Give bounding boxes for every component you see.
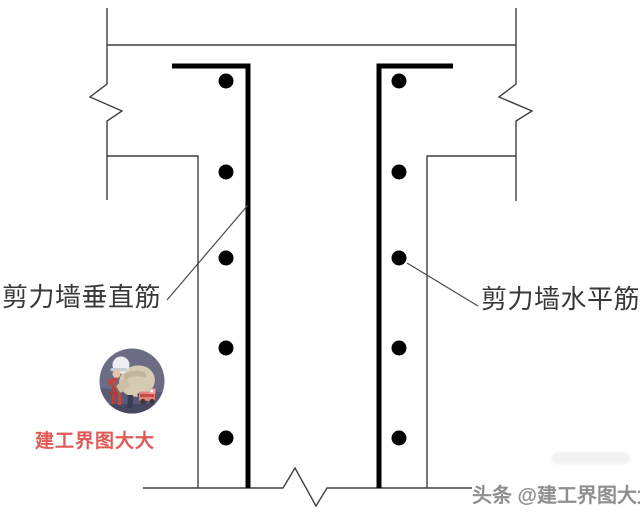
label-shear-wall-horizontal-rebar: 剪力墙水平筋 xyxy=(481,286,640,315)
credit-text: 头条 @建工界图大大 xyxy=(472,479,640,508)
vertical-rebar-leader xyxy=(167,205,248,300)
right-wall-face xyxy=(427,156,516,488)
leader-lines-group xyxy=(167,205,478,306)
right-horizontal-rebar-dot xyxy=(392,165,407,180)
vertical-rebar-group xyxy=(172,66,453,488)
faded-watermark-remnant xyxy=(552,452,630,464)
right-horizontal-rebar-dot xyxy=(392,341,407,356)
left-break-line xyxy=(90,8,122,200)
right-horizontal-rebar-dot xyxy=(392,74,407,89)
worker-avatar-image xyxy=(99,348,165,414)
right-horizontal-rebar-dot xyxy=(392,431,407,446)
right-vertical-rebar-bar xyxy=(379,66,453,488)
label-shear-wall-vertical-rebar: 剪力墙垂直筋 xyxy=(2,284,161,313)
left-horizontal-rebar-dot xyxy=(219,251,234,266)
left-horizontal-rebar-dot xyxy=(219,74,234,89)
left-horizontal-rebar-dot xyxy=(219,341,234,356)
watermark-avatar xyxy=(99,348,165,414)
left-horizontal-rebar-dot xyxy=(219,165,234,180)
horizontal-rebar-leader xyxy=(407,263,478,306)
right-break-line xyxy=(499,8,532,201)
watermark-name-text: 建工界图大大 xyxy=(30,426,160,453)
left-vertical-rebar-bar xyxy=(172,66,248,488)
left-horizontal-rebar-dot xyxy=(219,431,234,446)
bottom-break-line xyxy=(143,468,472,506)
right-horizontal-rebar-dot xyxy=(392,251,407,266)
shear-wall-reinforcement-diagram: 剪力墙垂直筋 剪力墙水平筋 xyxy=(0,0,640,514)
